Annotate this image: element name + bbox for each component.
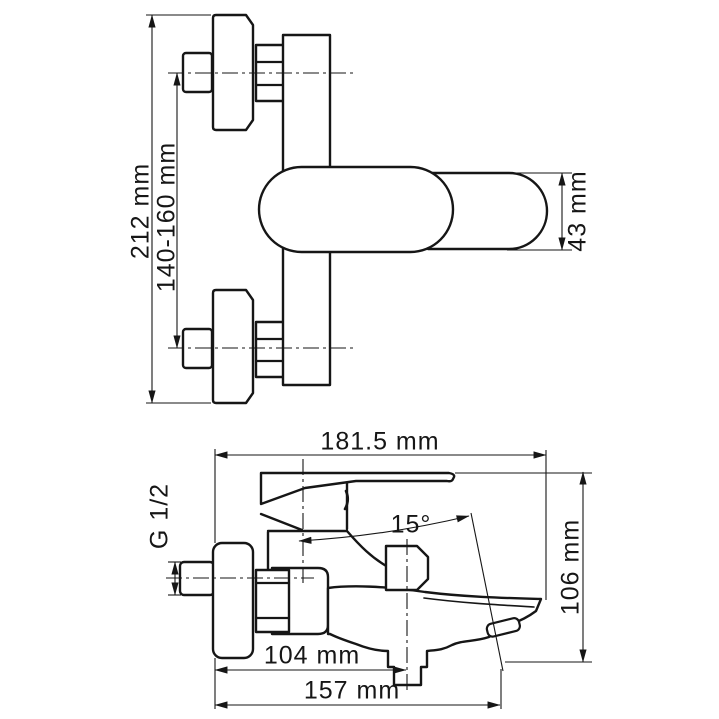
front-lower-escutcheon [213, 290, 253, 403]
dim-label-total-height: 212 mm [127, 163, 156, 259]
side-hex-nut [256, 570, 289, 632]
side-view-drawing [180, 473, 541, 685]
technical-drawing: 212 mm 140-160 mm 43 mm 181.5 mm 15° G 1… [0, 0, 719, 719]
dim-label-body-height: 43 mm [564, 170, 593, 251]
dim-label-outlet-reach: 104 mm [264, 642, 360, 671]
front-body-capsule [259, 167, 453, 252]
dim-label-thread-size: G 1/2 [146, 483, 175, 549]
drawing-canvas [0, 0, 719, 719]
dim-label-spout-angle: 15° [391, 511, 432, 540]
dim-15-arc [299, 516, 469, 541]
dim-label-view-height: 106 mm [557, 519, 586, 615]
dim-15-slant-line [471, 513, 503, 671]
dim-label-mount-spacing: 140-160 mm [153, 142, 182, 292]
side-handle-lever [261, 473, 454, 504]
dim-label-spout-reach: 157 mm [304, 677, 400, 706]
dim-label-total-reach: 181.5 mm [320, 428, 439, 457]
side-escutcheon [213, 543, 253, 658]
